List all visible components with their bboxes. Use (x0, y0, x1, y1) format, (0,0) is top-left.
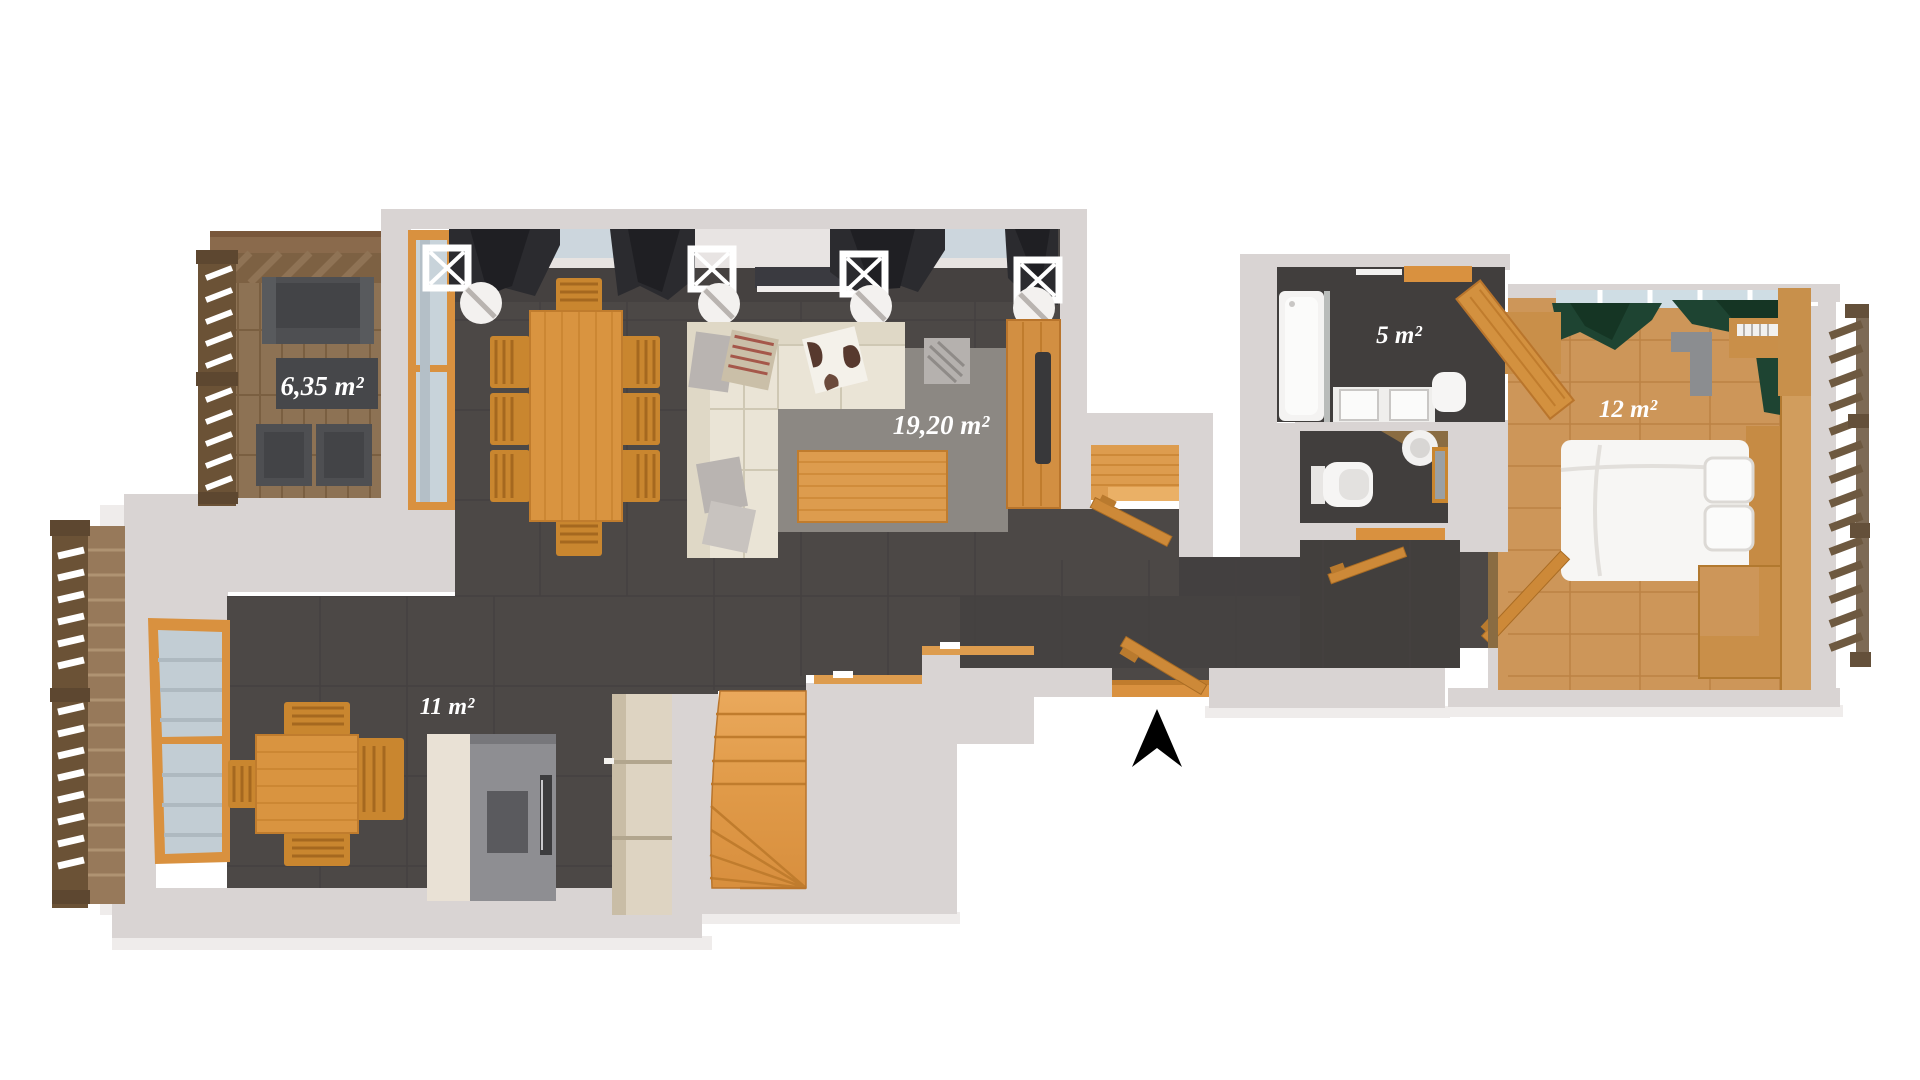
svg-text:12 m²: 12 m² (1599, 396, 1658, 423)
svg-text:11 m²: 11 m² (420, 694, 475, 720)
svg-text:6,35 m²: 6,35 m² (280, 371, 364, 401)
svg-text:5 m²: 5 m² (1376, 322, 1422, 349)
svg-text:19,20 m²: 19,20 m² (893, 410, 991, 440)
